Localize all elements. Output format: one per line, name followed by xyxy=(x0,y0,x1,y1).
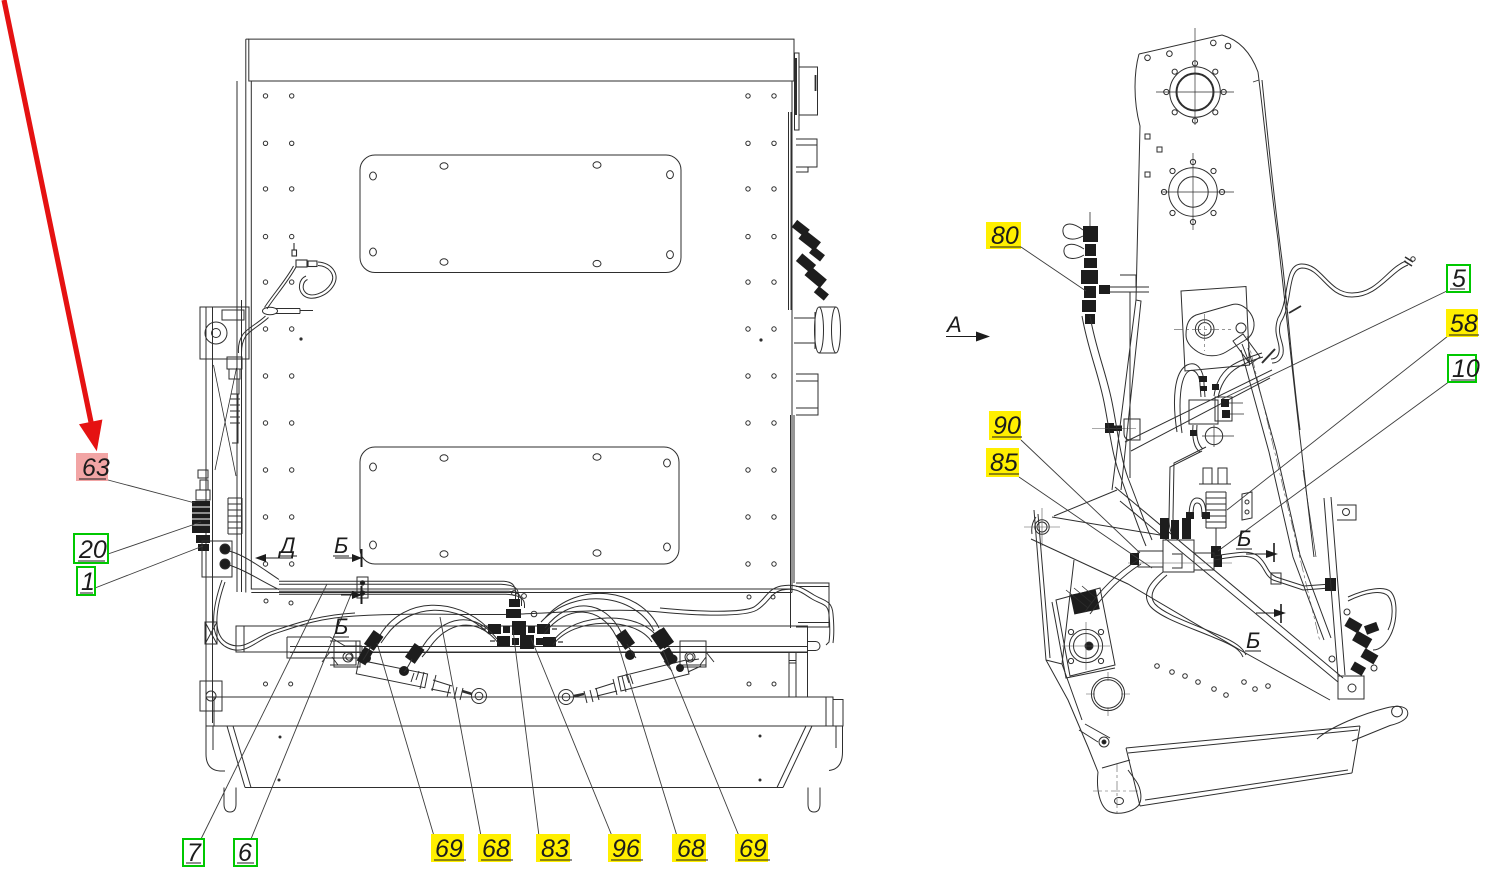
svg-text:69: 69 xyxy=(739,835,767,863)
svg-text:Б: Б xyxy=(334,533,348,558)
svg-text:1: 1 xyxy=(81,568,95,596)
svg-text:83: 83 xyxy=(541,835,569,863)
svg-text:63: 63 xyxy=(82,454,110,482)
svg-text:Б: Б xyxy=(334,614,348,639)
svg-text:85: 85 xyxy=(990,449,1018,477)
svg-text:69: 69 xyxy=(435,835,463,863)
svg-text:Б: Б xyxy=(1237,526,1251,551)
svg-text:80: 80 xyxy=(991,222,1019,250)
svg-text:A: A xyxy=(945,312,962,337)
svg-text:90: 90 xyxy=(993,412,1021,440)
svg-text:96: 96 xyxy=(612,835,640,863)
svg-text:10: 10 xyxy=(1452,355,1480,383)
svg-text:Д: Д xyxy=(277,533,296,558)
svg-text:20: 20 xyxy=(78,536,107,564)
svg-text:Б: Б xyxy=(1246,628,1260,653)
svg-text:68: 68 xyxy=(482,835,510,863)
svg-text:58: 58 xyxy=(1450,310,1478,338)
svg-text:68: 68 xyxy=(677,835,705,863)
